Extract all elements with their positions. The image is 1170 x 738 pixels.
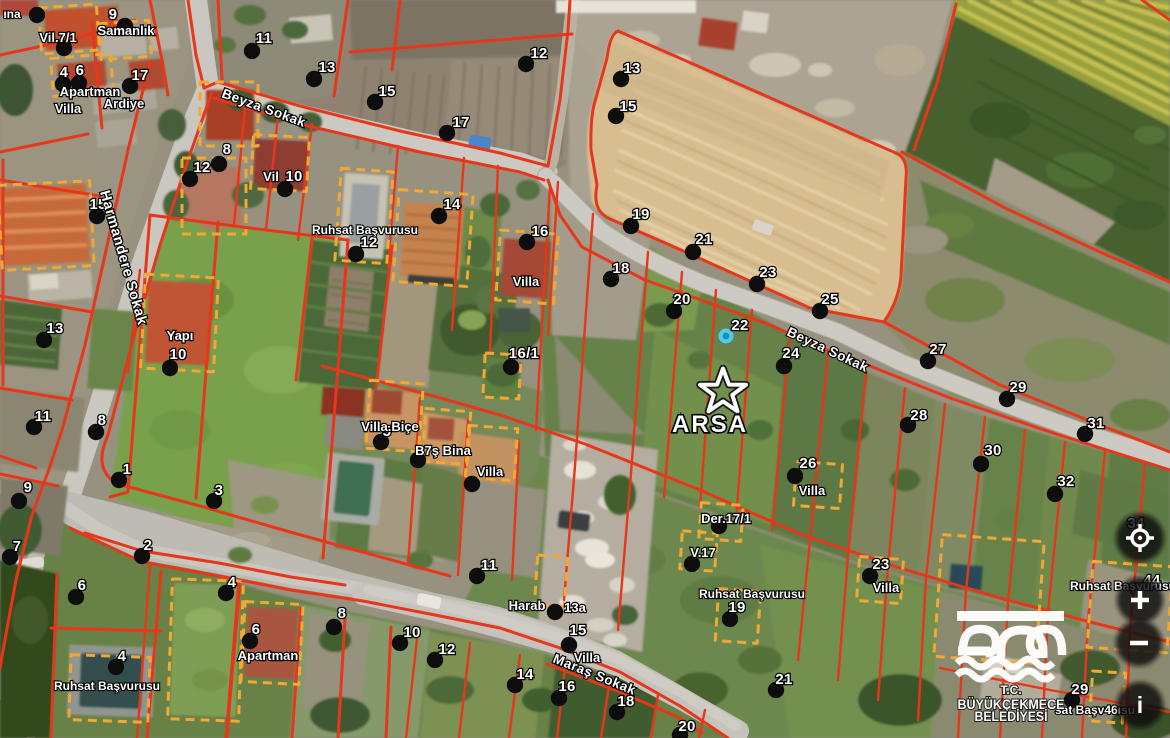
svg-text:2: 2 xyxy=(144,537,153,554)
svg-text:14: 14 xyxy=(516,666,534,683)
svg-text:9: 9 xyxy=(109,6,118,23)
svg-text:12: 12 xyxy=(438,641,455,658)
svg-text:18: 18 xyxy=(612,260,629,277)
svg-text:Villa: Villa xyxy=(799,483,826,498)
svg-text:13: 13 xyxy=(46,320,63,337)
svg-text:28: 28 xyxy=(910,407,927,424)
svg-text:13: 13 xyxy=(623,60,640,77)
svg-text:6: 6 xyxy=(76,62,85,79)
svg-text:21: 21 xyxy=(695,231,712,248)
svg-text:31: 31 xyxy=(1087,415,1104,432)
svg-text:27: 27 xyxy=(929,341,946,358)
svg-text:13: 13 xyxy=(318,59,335,76)
svg-text:26: 26 xyxy=(799,455,816,472)
svg-text:12: 12 xyxy=(193,159,210,176)
svg-text:7: 7 xyxy=(13,538,22,555)
svg-text:21: 21 xyxy=(775,671,792,688)
svg-text:17: 17 xyxy=(452,114,469,131)
svg-text:15: 15 xyxy=(378,83,395,100)
svg-text:Yapı: Yapı xyxy=(167,328,194,343)
svg-text:16: 16 xyxy=(558,678,575,695)
svg-text:Ruhsat Başvurusu: Ruhsat Başvurusu xyxy=(312,223,418,237)
svg-text:4: 4 xyxy=(118,648,127,665)
svg-text:Der.17/1: Der.17/1 xyxy=(701,511,751,526)
svg-text:29: 29 xyxy=(1071,681,1088,698)
svg-text:ına: ına xyxy=(3,7,21,21)
svg-text:22: 22 xyxy=(731,317,748,334)
svg-text:12: 12 xyxy=(530,45,547,62)
svg-text:23: 23 xyxy=(872,556,889,573)
svg-text:1: 1 xyxy=(123,461,132,478)
svg-text:3: 3 xyxy=(215,482,224,499)
svg-text:8: 8 xyxy=(98,412,107,429)
svg-text:9: 9 xyxy=(24,479,33,496)
svg-text:8: 8 xyxy=(338,605,347,622)
svg-text:10: 10 xyxy=(285,168,302,185)
svg-text:30: 30 xyxy=(984,442,1001,459)
svg-text:13a: 13a xyxy=(564,600,586,615)
svg-text:Harab: Harab xyxy=(509,598,546,613)
svg-text:29: 29 xyxy=(1009,379,1026,396)
svg-text:4: 4 xyxy=(228,574,237,591)
svg-text:i: i xyxy=(1137,692,1143,718)
svg-text:11: 11 xyxy=(35,408,51,425)
svg-text:19: 19 xyxy=(728,599,745,616)
svg-text:Vil: Vil xyxy=(263,169,279,184)
svg-text:14: 14 xyxy=(443,196,461,213)
svg-text:B7ş Bina: B7ş Bina xyxy=(415,443,471,458)
svg-text:23: 23 xyxy=(759,264,776,281)
svg-text:Villa: Villa xyxy=(477,464,504,479)
svg-text:Ruhsat Başvurusu: Ruhsat Başvurusu xyxy=(699,587,805,601)
svg-text:16/1: 16/1 xyxy=(509,345,539,362)
svg-text:V.17: V.17 xyxy=(690,545,716,560)
svg-text:16: 16 xyxy=(531,223,548,240)
svg-text:20: 20 xyxy=(673,291,690,308)
svg-text:15: 15 xyxy=(569,622,586,639)
svg-text:25: 25 xyxy=(821,291,838,308)
svg-text:11: 11 xyxy=(256,30,272,47)
svg-text:Villa: Villa xyxy=(55,101,82,116)
svg-text:20: 20 xyxy=(678,718,695,735)
svg-text:15: 15 xyxy=(619,98,636,115)
svg-text:10: 10 xyxy=(403,624,420,641)
svg-text:6: 6 xyxy=(78,577,87,594)
svg-text:4: 4 xyxy=(60,64,69,81)
svg-text:Ardiye: Ardiye xyxy=(104,96,144,111)
svg-text:T.C.: T.C. xyxy=(1000,683,1021,697)
svg-text:Ruhsat Başvurusu: Ruhsat Başvurusu xyxy=(54,679,160,693)
svg-text:BELEDİYESİ: BELEDİYESİ xyxy=(975,709,1048,724)
svg-text:8: 8 xyxy=(223,141,232,158)
svg-text:11: 11 xyxy=(481,557,497,574)
svg-text:24: 24 xyxy=(782,345,800,362)
svg-text:Villa: Villa xyxy=(873,580,900,595)
svg-text:Villa.Biçe: Villa.Biçe xyxy=(361,419,419,434)
svg-text:32: 32 xyxy=(1057,473,1074,490)
svg-text:Apartman: Apartman xyxy=(238,648,299,663)
svg-text:10: 10 xyxy=(169,346,186,363)
svg-text:ARSA: ARSA xyxy=(672,411,748,438)
svg-text:Vil.7/1: Vil.7/1 xyxy=(39,30,76,45)
svg-text:6: 6 xyxy=(252,621,261,638)
svg-text:Samanlık: Samanlık xyxy=(97,23,155,38)
svg-text:Villa: Villa xyxy=(513,274,540,289)
svg-text:17: 17 xyxy=(131,67,148,84)
svg-text:19: 19 xyxy=(632,206,649,223)
